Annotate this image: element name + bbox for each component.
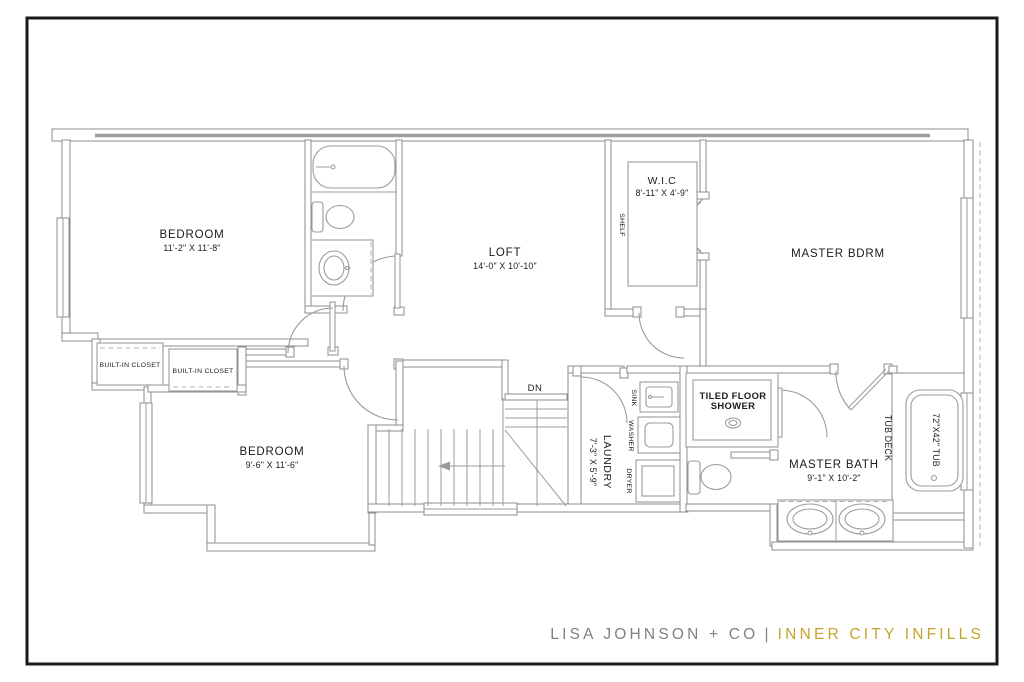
laundry-dims: 7'-3" X 5'-9" [588, 438, 598, 486]
door-laundry [581, 377, 627, 423]
stair-diagonal [505, 430, 566, 506]
branding-separator: | [758, 626, 777, 643]
loft-name: LOFT [489, 247, 522, 259]
bedroom2-name: BEDROOM [239, 446, 304, 458]
loft-dims: 14'-0" X 10'-10" [473, 261, 537, 271]
bedroom1-dims: 11'-2" X 11'-8" [163, 243, 220, 253]
sink-label: SINK [630, 389, 637, 406]
master-bath-name: MASTER BATH [789, 459, 879, 471]
bedroom2-dims: 9'-6" X 11'-6" [246, 460, 299, 470]
tub-deck-label: TUB DECK [883, 415, 893, 461]
walls [52, 129, 980, 551]
floor-plan-page: BEDROOM 11'-2" X 11'-8" BEDROOM 9'-6" X … [0, 0, 1024, 682]
door-shower [780, 390, 827, 437]
washer-label: WASHER [627, 420, 634, 451]
bathtub-icon [311, 146, 396, 192]
branding-company: LISA JOHNSON + CO [550, 626, 758, 643]
floor-plan-svg: BEDROOM 11'-2" X 11'-8" BEDROOM 9'-6" X … [0, 0, 1024, 682]
dryer-icon [636, 460, 680, 502]
wic-dims: 8'-11" X 4'-9" [636, 188, 689, 198]
laundry-sink-icon [640, 382, 678, 412]
room-labels: BEDROOM 11'-2" X 11'-8" BEDROOM 9'-6" X … [99, 175, 941, 494]
closet1-label: BUILT-IN CLOSET [99, 362, 160, 369]
shelf-label: SHELF [618, 213, 625, 236]
closet2-label: BUILT-IN CLOSET [172, 368, 233, 375]
laundry-name: LAUNDRY [601, 435, 613, 489]
branding: LISA JOHNSON + CO|INNER CITY INFILLS [550, 626, 984, 644]
master-bedroom-name: MASTER BDRM [791, 248, 885, 260]
vanity-sink-icon [311, 240, 373, 296]
washer-icon [638, 417, 680, 453]
door-master-bath [836, 371, 851, 410]
wic-name: W.I.C [648, 175, 677, 187]
toilet-icon [312, 202, 354, 232]
bedroom1-name: BEDROOM [159, 229, 224, 241]
shower-label-2: SHOWER [711, 400, 756, 411]
master-toilet-icon [688, 461, 731, 494]
tub-label: 72"X42" TUB [931, 413, 941, 467]
door-wic [639, 313, 684, 358]
door-bedroom2 [344, 366, 398, 420]
double-vanity-icon [778, 500, 893, 541]
door-bedroom1 [330, 302, 335, 351]
stairs [389, 398, 567, 506]
stair-direction-arrow [438, 462, 450, 471]
master-bath-dims: 9'-1" X 10'-2" [807, 473, 860, 483]
dryer-label: DRYER [625, 468, 632, 493]
stairs-down-label: DN [528, 383, 543, 394]
branding-project: INNER CITY INFILLS [778, 626, 984, 643]
